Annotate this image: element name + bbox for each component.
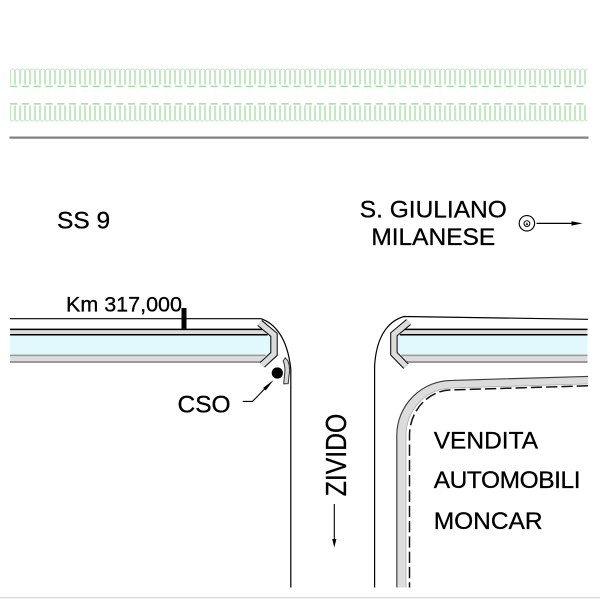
svg-text:S. GIULIANO: S. GIULIANO <box>360 196 507 223</box>
svg-text:VENDITA: VENDITA <box>434 428 539 455</box>
svg-text:SS 9: SS 9 <box>57 208 110 235</box>
svg-text:Km 317,000: Km 317,000 <box>66 293 182 317</box>
svg-text:MONCAR: MONCAR <box>434 508 543 535</box>
svg-text:AUTOMOBILI: AUTOMOBILI <box>434 467 580 494</box>
svg-text:CSO: CSO <box>178 392 231 419</box>
svg-text:MILANESE: MILANESE <box>371 224 495 251</box>
svg-text:ZIVIDO: ZIVIDO <box>321 414 353 497</box>
